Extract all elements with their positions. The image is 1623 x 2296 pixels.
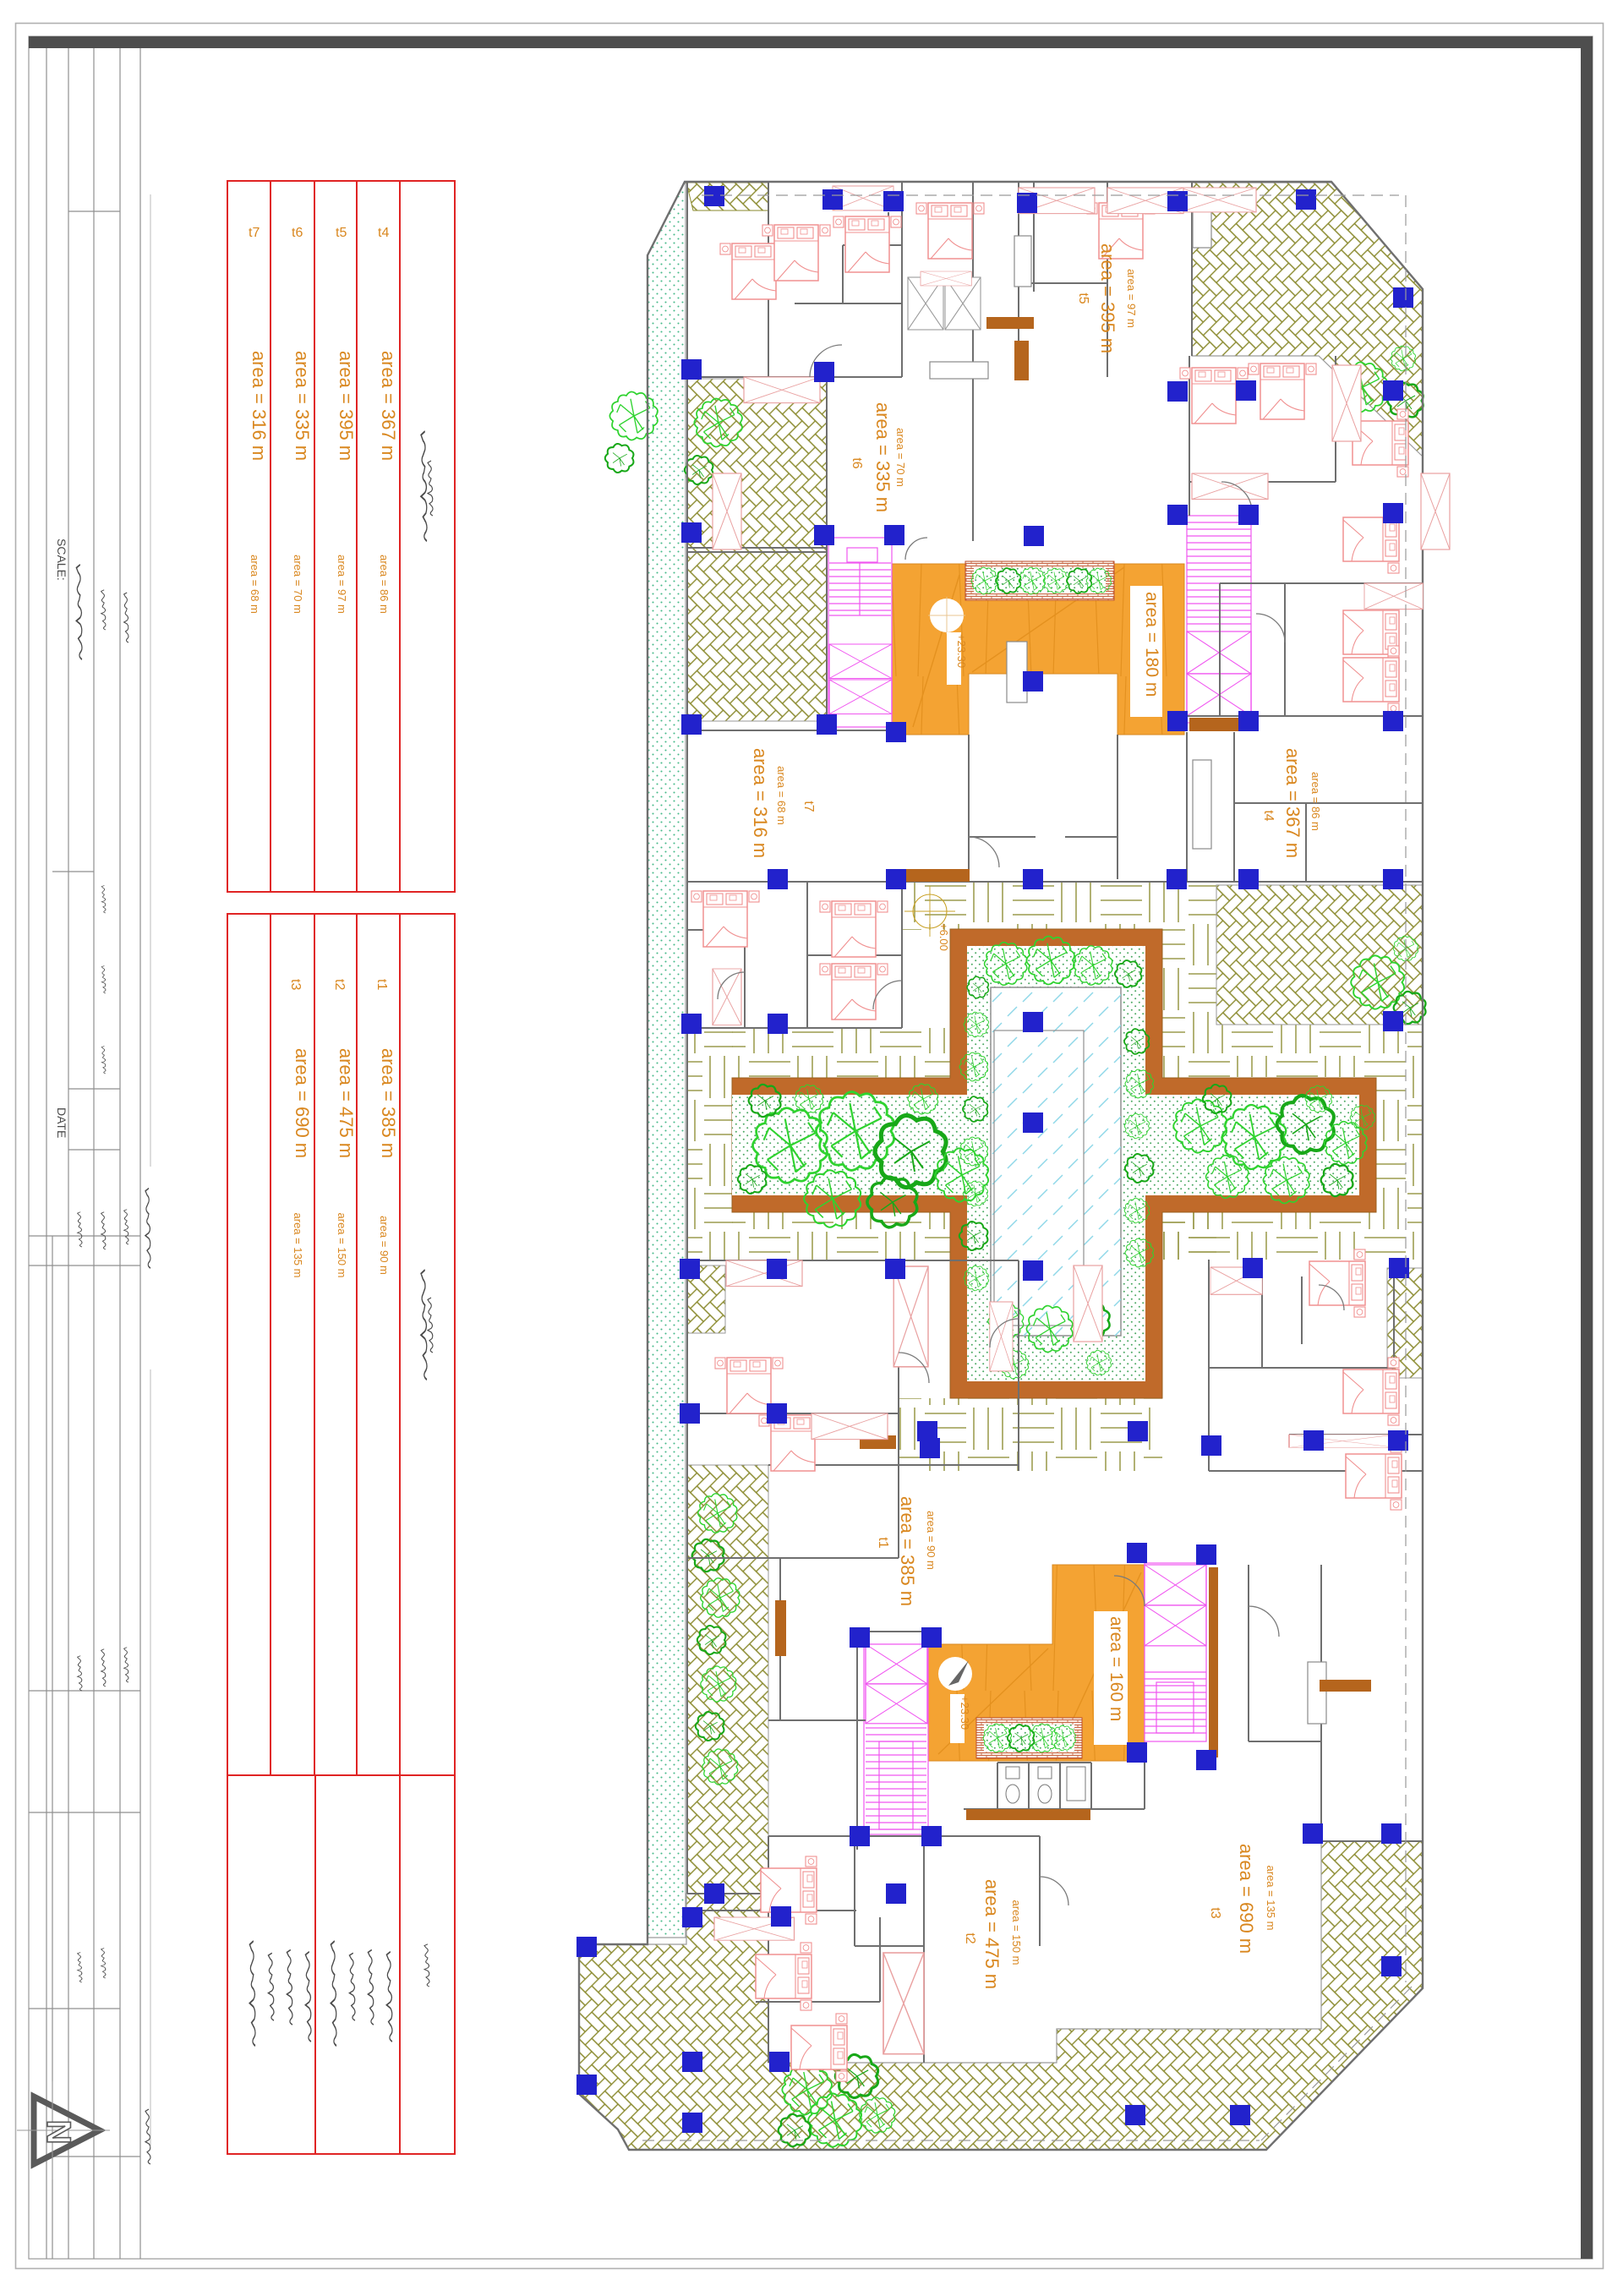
svg-text:+23.30: +23.30 (955, 634, 968, 668)
svg-text:t3: t3 (288, 979, 303, 990)
svg-text:area = 70 m: area = 70 m (894, 428, 907, 487)
svg-text:area = 70 m: area = 70 m (292, 555, 304, 614)
svg-text:t1: t1 (876, 1537, 890, 1548)
svg-text:area = 367 m: area = 367 m (378, 351, 399, 461)
svg-text:area = 475 m: area = 475 m (336, 1048, 357, 1158)
svg-text:area = 135 m: area = 135 m (1265, 1866, 1277, 1931)
svg-text:area = 395 m: area = 395 m (336, 351, 357, 461)
svg-text:area = 97 m: area = 97 m (1125, 269, 1138, 328)
svg-text:area = 68 m: area = 68 m (775, 766, 788, 825)
svg-text:+23.30: +23.30 (959, 1696, 971, 1730)
svg-text:area = 395 m: area = 395 m (1097, 243, 1118, 353)
svg-text:t6: t6 (292, 226, 303, 240)
svg-text:area = 316 m: area = 316 m (750, 748, 771, 858)
svg-text:area = 475 m: area = 475 m (981, 1879, 1003, 1989)
svg-text:area = 97 m: area = 97 m (336, 555, 348, 614)
svg-text:area = 335 m: area = 335 m (292, 351, 313, 461)
svg-text:t5: t5 (336, 226, 347, 240)
svg-text:t7: t7 (249, 226, 260, 240)
svg-text:t6: t6 (850, 457, 864, 468)
svg-text:+6.00: +6.00 (937, 923, 950, 951)
svg-text:area = 150 m: area = 150 m (336, 1213, 348, 1278)
svg-text:area = 90 m: area = 90 m (925, 1511, 937, 1570)
svg-text:area = 180 m: area = 180 m (1142, 592, 1161, 697)
svg-text:area = 316 m: area = 316 m (249, 351, 270, 461)
svg-text:t4: t4 (378, 226, 389, 240)
svg-text:area = 690 m: area = 690 m (292, 1048, 313, 1158)
svg-text:area = 90 m: area = 90 m (378, 1216, 391, 1275)
svg-text:area = 385 m: area = 385 m (897, 1496, 918, 1606)
svg-text:t2: t2 (963, 1932, 977, 1943)
svg-text:area = 68 m: area = 68 m (249, 555, 261, 614)
svg-text:SCALE:: SCALE: (55, 538, 68, 581)
svg-text:area = 135 m: area = 135 m (292, 1213, 304, 1278)
svg-text:area = 86 m: area = 86 m (1309, 772, 1322, 831)
svg-text:area = 86 m: area = 86 m (378, 555, 391, 614)
svg-text:t1: t1 (374, 979, 389, 990)
svg-text:area = 160 m: area = 160 m (1107, 1616, 1126, 1721)
svg-text:t7: t7 (801, 801, 816, 812)
svg-text:DATE: DATE (55, 1107, 68, 1138)
svg-text:t5: t5 (1076, 292, 1090, 303)
svg-text:area = 335 m: area = 335 m (872, 402, 893, 512)
svg-text:t2: t2 (332, 979, 347, 990)
svg-text:area = 690 m: area = 690 m (1236, 1844, 1257, 1954)
svg-text:t3: t3 (1208, 1907, 1222, 1918)
svg-text:area = 385 m: area = 385 m (378, 1048, 399, 1158)
svg-text:N: N (40, 2120, 77, 2145)
svg-text:t4: t4 (1261, 810, 1276, 821)
svg-text:area = 367 m: area = 367 m (1282, 748, 1303, 858)
svg-text:area = 150 m: area = 150 m (1010, 1900, 1023, 1965)
